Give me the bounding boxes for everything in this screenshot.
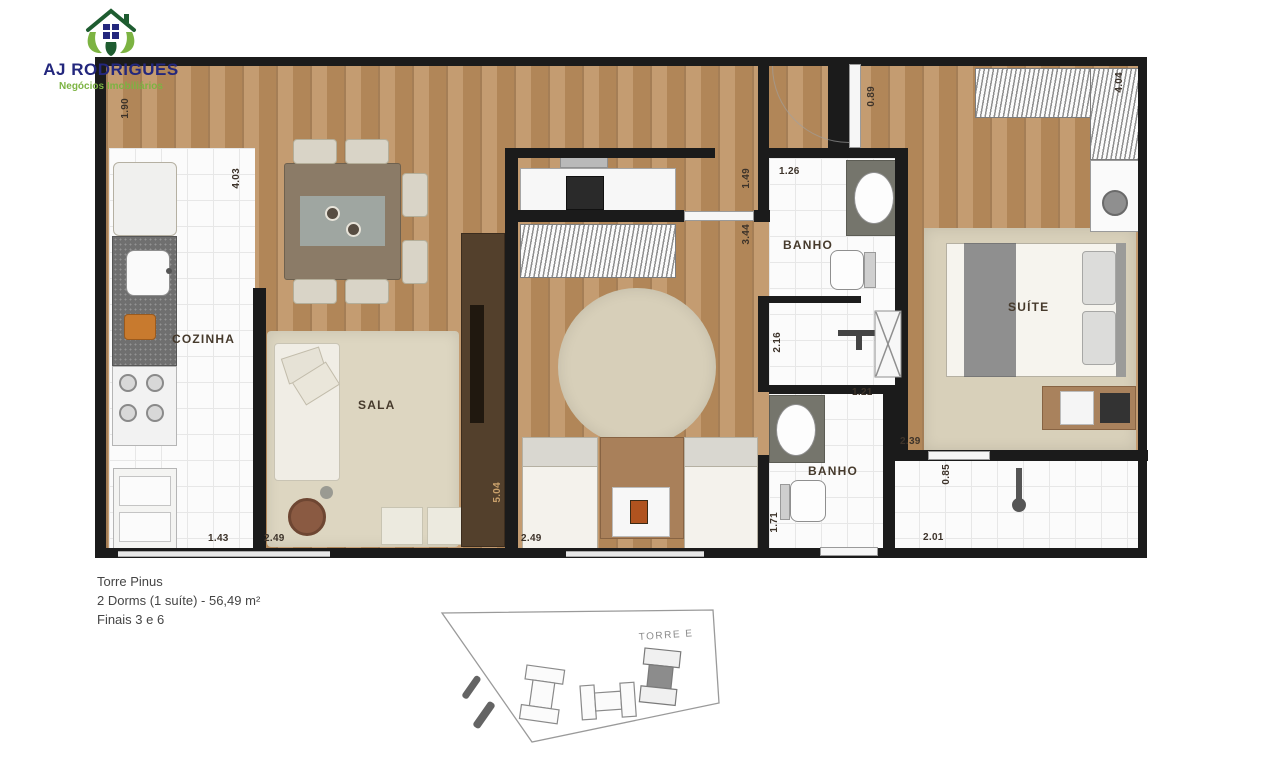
plan-caption: Torre Pinus 2 Dorms (1 suíte) - 56,49 m²… xyxy=(97,572,260,629)
dining-chair xyxy=(345,279,389,304)
plate xyxy=(325,206,340,221)
wall xyxy=(106,57,1147,66)
site-plan: TORRE E xyxy=(432,600,732,750)
cabinet-drawer xyxy=(119,476,171,506)
dining-chair xyxy=(345,139,389,164)
suite-closet-top xyxy=(975,68,1095,118)
dimension-label: 4.03 xyxy=(231,168,242,189)
nightstand-lamp xyxy=(630,500,648,524)
room-label-kitchen: COZINHA xyxy=(172,332,235,346)
sink-basin xyxy=(776,404,816,456)
closet-basket xyxy=(1102,190,1128,216)
bath-door xyxy=(820,547,878,556)
toilet-tank xyxy=(864,252,876,288)
house-logo-icon xyxy=(76,6,146,58)
window xyxy=(566,551,704,557)
bedroom-door xyxy=(684,211,754,221)
dimension-label: 1.49 xyxy=(741,168,752,189)
wall xyxy=(253,288,266,548)
room-label-bath-upper: BANHO xyxy=(783,238,833,252)
burner xyxy=(119,374,137,392)
dimension-label: 2.39 xyxy=(900,436,921,447)
room-label-suite: SUÍTE xyxy=(1008,300,1049,314)
suite-door xyxy=(928,451,990,460)
wall xyxy=(1138,57,1147,558)
cabinet-drawer xyxy=(119,512,171,542)
plate xyxy=(346,222,361,237)
pillow xyxy=(1082,251,1116,305)
dimension-label: 1.43 xyxy=(208,533,229,544)
dimension-label: 2.49 xyxy=(521,533,542,544)
dining-chair xyxy=(293,279,337,304)
dimension-label: 2.49 xyxy=(264,533,285,544)
dimension-label: 1.90 xyxy=(120,98,131,119)
dimension-label: 1.71 xyxy=(769,512,780,533)
round-side-table xyxy=(288,498,326,536)
wall xyxy=(518,210,684,222)
window xyxy=(118,551,330,557)
bed-blanket xyxy=(522,437,598,467)
desk-tv xyxy=(566,176,604,210)
kitchen-faucet xyxy=(166,268,172,274)
headboard xyxy=(1116,243,1126,377)
dresser-tv xyxy=(1100,393,1130,423)
dimension-label: 2.16 xyxy=(772,332,783,353)
burner xyxy=(119,404,137,422)
dimension-label: 2.01 xyxy=(923,532,944,543)
dimension-label: 0.89 xyxy=(866,86,877,107)
floor-plan-sheet: COZINHA SALA BANHO BANHO SUÍTE 1.90 4.03… xyxy=(0,0,1280,779)
company-logo: AJ RODRIGUES Negócios Imobiliários xyxy=(6,6,216,92)
wall xyxy=(769,385,901,394)
wardrobe xyxy=(520,224,676,278)
dimension-label: 0.85 xyxy=(941,464,952,485)
dimension-label: 1.26 xyxy=(779,166,800,177)
door-x-symbol xyxy=(874,310,902,378)
bed-blanket xyxy=(684,437,758,467)
caption-tower: Torre Pinus xyxy=(97,572,260,591)
decor-circle xyxy=(320,486,333,499)
dimension-label: 5.04 xyxy=(492,482,503,503)
cutting-board xyxy=(124,314,156,340)
wall xyxy=(883,393,895,548)
table-runner xyxy=(300,196,385,246)
dimension-label: 4.04 xyxy=(1114,72,1125,93)
wall xyxy=(769,296,861,303)
toilet-tank xyxy=(780,484,790,520)
logo-company-name: AJ RODRIGUES xyxy=(6,60,216,80)
burner xyxy=(146,404,164,422)
toilet xyxy=(790,480,826,522)
dimension-label: 1.21 xyxy=(852,387,873,398)
wall xyxy=(758,455,769,548)
pillow xyxy=(1082,311,1116,365)
shower-fixture xyxy=(1016,468,1022,502)
wall xyxy=(505,148,715,158)
shower-fixture-head xyxy=(1012,498,1026,512)
pouf xyxy=(381,507,423,545)
sink-basin xyxy=(854,172,894,224)
room-label-living: SALA xyxy=(358,398,395,412)
wall xyxy=(505,148,518,548)
kitchen-sink xyxy=(126,250,170,296)
dining-chair xyxy=(293,139,337,164)
burner xyxy=(146,374,164,392)
caption-units: Finais 3 e 6 xyxy=(97,610,260,629)
shower-stem xyxy=(856,336,862,350)
dining-chair xyxy=(402,173,428,217)
bedroom-round-rug xyxy=(558,288,716,446)
wall xyxy=(895,148,908,460)
wall xyxy=(95,57,106,558)
toilet xyxy=(830,250,864,290)
dresser-drawer xyxy=(1060,391,1094,425)
wall xyxy=(758,296,769,392)
logo-tagline: Negócios Imobiliários xyxy=(6,81,216,92)
dimension-label: 3.44 xyxy=(741,224,752,245)
wall xyxy=(758,62,769,212)
fridge xyxy=(113,162,177,236)
caption-typology: 2 Dorms (1 suíte) - 56,49 m² xyxy=(97,591,260,610)
entry-door xyxy=(849,64,861,148)
room-label-bath-lower: BANHO xyxy=(808,464,858,478)
dining-chair xyxy=(402,240,428,284)
tv-screen xyxy=(470,305,484,423)
